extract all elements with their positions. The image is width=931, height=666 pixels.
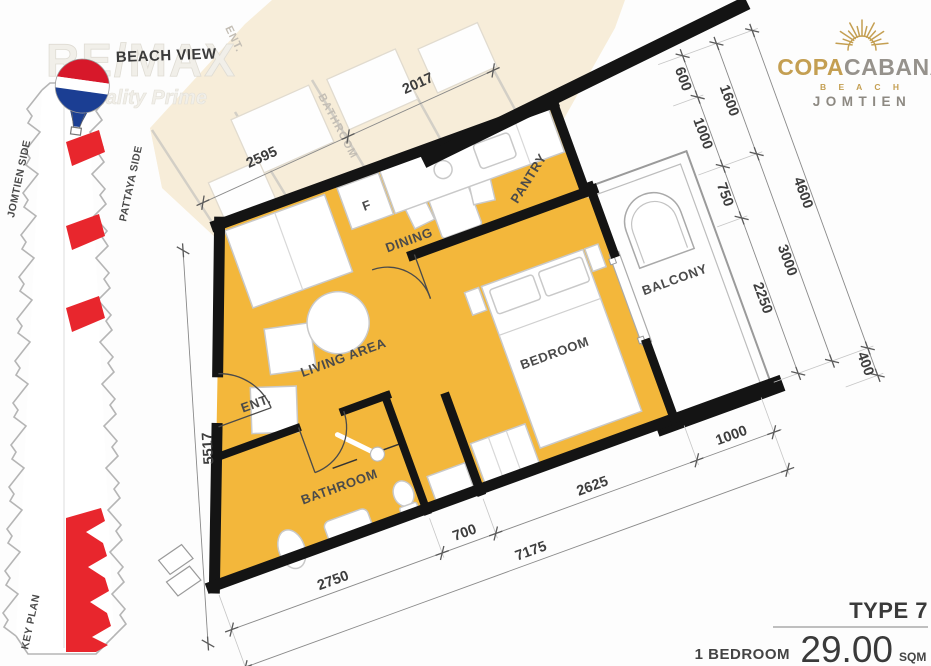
- beach-view-label: BEACH VIEW: [116, 45, 218, 66]
- bedroom-count: 1 BEDROOM: [695, 646, 790, 663]
- floorplan-canvas: ENT. BATHROOM RE/MAX Quality Prime JOMTI…: [0, 0, 931, 666]
- logo-jomtien: JOMTIEN: [813, 94, 912, 109]
- logo-beach: B E A C H: [820, 82, 904, 92]
- dim-left: 5517: [200, 432, 218, 465]
- area-value: 29.00: [800, 629, 893, 666]
- unit-type-title: TYPE 7: [849, 598, 928, 623]
- logo-wordmark: COPACABANA: [777, 54, 931, 80]
- area-unit: SQM: [899, 650, 926, 664]
